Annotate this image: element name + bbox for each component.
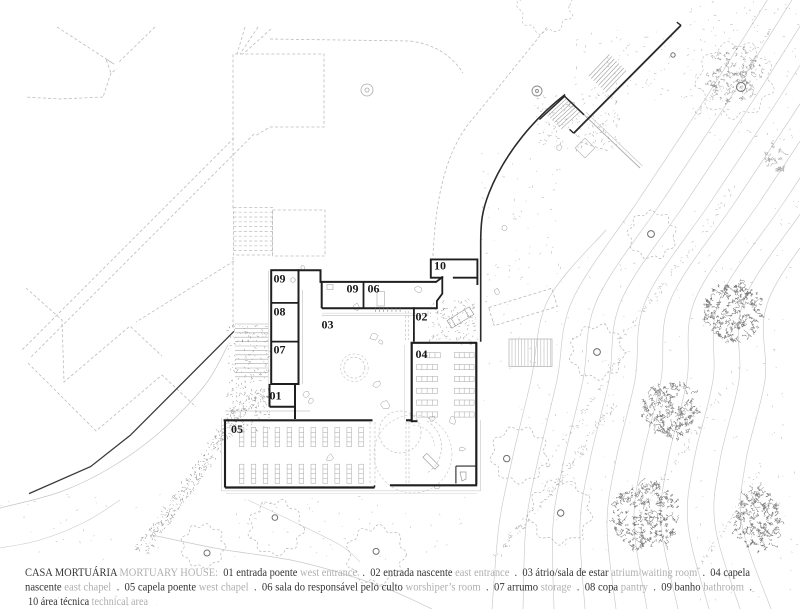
svg-text:07: 07 bbox=[274, 343, 286, 357]
svg-text:03: 03 bbox=[322, 318, 334, 332]
svg-text:06: 06 bbox=[368, 282, 380, 296]
svg-text:04: 04 bbox=[416, 347, 428, 361]
svg-text:nascente east chapel . 05 ca: nascente east chapel . 05 capela poente … bbox=[25, 582, 752, 594]
svg-text:09: 09 bbox=[274, 272, 286, 286]
svg-text:CASA MORTUÁRIA MORTUARY HOUSE:: CASA MORTUÁRIA MORTUARY HOUSE: 01 entrad… bbox=[25, 567, 750, 579]
svg-text:09: 09 bbox=[347, 282, 359, 296]
svg-text:01: 01 bbox=[270, 389, 282, 403]
svg-text:05: 05 bbox=[231, 422, 243, 436]
svg-text:02: 02 bbox=[416, 310, 428, 324]
svg-text:10 área técnica technical area: 10 área técnica technical area bbox=[28, 596, 148, 608]
svg-text:10: 10 bbox=[434, 259, 446, 273]
svg-text:08: 08 bbox=[274, 305, 286, 319]
